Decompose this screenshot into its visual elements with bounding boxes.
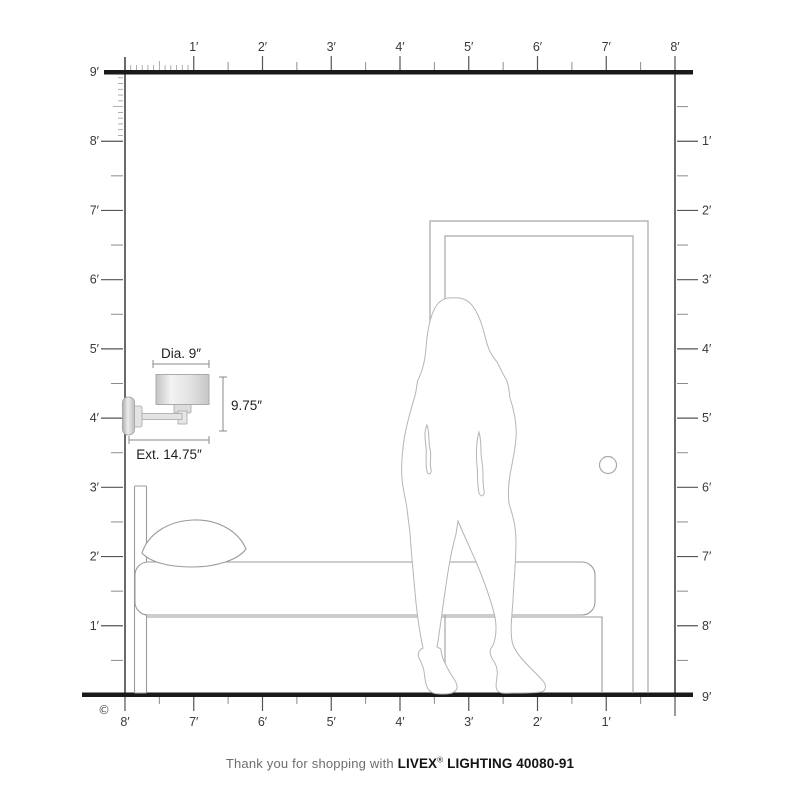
bottom-ruler: 8′7′6′5′4′3′2′1′ [120, 697, 675, 729]
ruler-tick-label: 8′ [702, 619, 712, 633]
lamp-swing-arm [140, 414, 182, 420]
ruler-tick-label: 3′ [702, 273, 712, 287]
person-outline [402, 298, 546, 694]
ruler-tick-label: 9′ [90, 65, 100, 79]
bed-outline [135, 486, 603, 693]
ruler-tick-label: 7′ [602, 40, 612, 54]
ruler-tick-label: 7′ [90, 203, 100, 217]
room-elevation-drawing: 1′2′3′4′5′6′7′8′ 9′1′2′3′4′5′6′7′8′ 1′2′… [0, 0, 800, 800]
pillow [142, 520, 246, 567]
top-ruler: 1′2′3′4′5′6′7′8′ [131, 40, 681, 70]
mattress [135, 562, 595, 615]
lamp-wall-plate [123, 397, 135, 435]
wall-sconce-lamp [123, 375, 210, 436]
ruler-tick-label: 5′ [90, 342, 100, 356]
ruler-tick-label: 4′ [395, 40, 405, 54]
ruler-tick-label: 5′ [464, 40, 474, 54]
ruler-tick-label: 8′ [120, 715, 130, 729]
ruler-tick-label: 5′ [702, 411, 712, 425]
footer-prefix: Thank you for shopping with [226, 756, 398, 771]
ruler-tick-label: 2′ [702, 203, 712, 217]
ruler-tick-label: 6′ [533, 40, 543, 54]
ruler-tick-label: 7′ [702, 550, 712, 564]
ruler-tick-label: 9′ [702, 690, 712, 704]
diameter-label: Dia. 9″ [161, 346, 201, 361]
ruler-tick-label: 6′ [90, 273, 100, 287]
floor-line [82, 693, 693, 698]
ruler-tick-label: 1′ [189, 40, 199, 54]
person-silhouette [402, 298, 546, 694]
door-knob [600, 457, 617, 474]
ceiling-line [104, 70, 693, 75]
ruler-tick-label: 4′ [702, 342, 712, 356]
ruler-tick-label: 1′ [602, 715, 612, 729]
ruler-tick-label: 2′ [90, 550, 100, 564]
brand-name: LIVEX [398, 756, 438, 771]
ruler-tick-label: 1′ [90, 619, 100, 633]
footer-caption: Thank you for shopping with LIVEX® LIGHT… [0, 756, 800, 771]
ruler-tick-label: 5′ [327, 715, 337, 729]
ruler-tick-label: 3′ [90, 480, 100, 494]
ruler-tick-label: 7′ [189, 715, 199, 729]
left-ruler: 9′1′2′3′4′5′6′7′8′ [90, 65, 123, 660]
ruler-tick-label: 8′ [90, 134, 100, 148]
product-number: LIGHTING 40080-91 [443, 756, 574, 771]
ruler-tick-label: 8′ [670, 40, 680, 54]
ruler-tick-label: 3′ [327, 40, 337, 54]
lamp-shade [156, 375, 209, 405]
extension-label: Ext. 14.75″ [136, 447, 202, 462]
ruler-tick-label: 2′ [533, 715, 543, 729]
ruler-tick-label: 3′ [464, 715, 474, 729]
ruler-tick-label: 6′ [702, 480, 712, 494]
ruler-tick-label: 1′ [702, 134, 712, 148]
ruler-tick-label: 4′ [90, 411, 100, 425]
right-ruler: 1′2′3′4′5′6′7′8′9′ [677, 107, 712, 704]
ruler-tick-label: 2′ [258, 40, 268, 54]
ruler-tick-label: 4′ [395, 715, 405, 729]
ruler-tick-label: 6′ [258, 715, 268, 729]
product-dimension-diagram: 1′2′3′4′5′6′7′8′ 9′1′2′3′4′5′6′7′8′ 1′2′… [0, 0, 800, 800]
height-label: 9.75″ [231, 398, 262, 413]
copyright-symbol: © [98, 703, 110, 717]
